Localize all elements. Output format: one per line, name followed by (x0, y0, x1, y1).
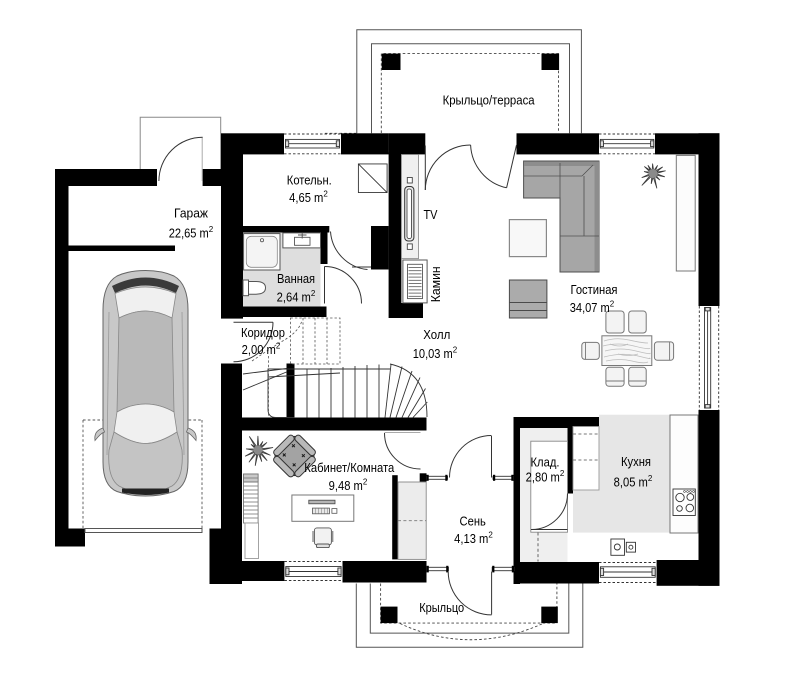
svg-text:Сень: Сень (460, 514, 486, 529)
svg-text:4,65 m2: 4,65 m2 (289, 190, 328, 206)
svg-text:Гостиная: Гостиная (571, 282, 618, 297)
svg-text:34,07 m2: 34,07 m2 (570, 300, 615, 316)
svg-text:Клад.: Клад. (531, 455, 560, 470)
svg-text:8,05 m2: 8,05 m2 (614, 474, 653, 490)
svg-text:Ванная: Ванная (277, 271, 315, 286)
svg-text:22,65 m2: 22,65 m2 (169, 225, 214, 241)
svg-text:10,03 m2: 10,03 m2 (413, 346, 458, 362)
svg-text:Крыльцо: Крыльцо (419, 600, 464, 615)
svg-text:TV: TV (424, 207, 438, 222)
svg-text:Гараж: Гараж (174, 206, 208, 221)
svg-text:2,64 m2: 2,64 m2 (277, 289, 316, 305)
svg-text:Кабинет/Комната: Кабинет/Комната (304, 460, 395, 475)
svg-text:Коридор: Коридор (241, 325, 285, 340)
svg-text:Камин: Камин (428, 266, 443, 302)
svg-text:9,48 m2: 9,48 m2 (329, 478, 368, 494)
svg-text:Котельн.: Котельн. (287, 173, 332, 188)
svg-text:Крыльцо/терраса: Крыльцо/терраса (443, 93, 536, 108)
svg-text:Кухня: Кухня (621, 454, 651, 469)
svg-text:4,13 m2: 4,13 m2 (454, 531, 493, 547)
svg-text:2,00 m2: 2,00 m2 (242, 342, 281, 358)
svg-text:2,80 m2: 2,80 m2 (526, 469, 565, 485)
svg-text:Холл: Холл (423, 327, 450, 342)
